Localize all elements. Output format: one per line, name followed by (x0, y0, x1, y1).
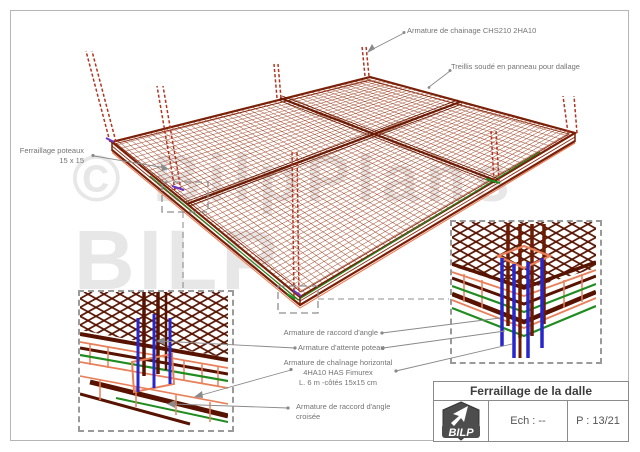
annotation-chainage-top: Armature de chainage CHS210 2HA10 (407, 26, 536, 36)
annotation-text: croisée (296, 412, 406, 422)
annotation-attente-poteau: Armature d'attente poteau (298, 343, 382, 353)
detail-inset-edge-column (78, 290, 234, 432)
annotation-text: Armature d'attente poteau (298, 343, 385, 352)
page-number-label: P : 13/21 (568, 401, 628, 441)
drawing-title: Ferraillage de la dalle (434, 382, 628, 401)
bilp-logo: BILP (434, 401, 489, 441)
bilp-logo-icon: BILP (440, 401, 482, 441)
annotation-text: Armature de raccord d'angle (284, 328, 378, 337)
annotation-text: Armature de chainage CHS210 2HA10 (407, 26, 536, 35)
annotation-chainage-horizontal: Armature de chaînage horizontal 4HA10 HA… (282, 358, 394, 388)
annotation-text: Ferraillage poteaux (6, 146, 84, 156)
title-block-bottom-row: BILP Ech : -- P : 13/21 (434, 401, 628, 441)
scale-label: Ech : -- (489, 401, 568, 441)
drawing-sheet: © BilpPlans BILP (0, 0, 640, 452)
annotation-text: 15 x 15 (6, 156, 84, 166)
annotation-text: Armature de chaînage horizontal (282, 358, 394, 368)
detail-inset-corner-column (450, 220, 602, 364)
annotation-raccord-croise: Armature de raccord d'angle croisée (296, 402, 406, 422)
annotation-treillis: Treillis soudé en panneau pour dallage (451, 62, 580, 72)
annotation-text: Armature de raccord d'angle (296, 402, 406, 412)
annotation-ferraillage-poteaux: Ferraillage poteaux 15 x 15 (6, 146, 84, 166)
logo-text: BILP (448, 427, 474, 439)
annotation-text: Treillis soudé en panneau pour dallage (451, 62, 580, 71)
title-block: Ferraillage de la dalle BILP Ech : -- P … (433, 381, 629, 442)
annotation-text: L. 6 m -côtés 15x15 cm (282, 378, 394, 388)
annotation-raccord-angle: Armature de raccord d'angle (260, 328, 378, 338)
annotation-text: 4HA10 HAS Fimurex (282, 368, 394, 378)
